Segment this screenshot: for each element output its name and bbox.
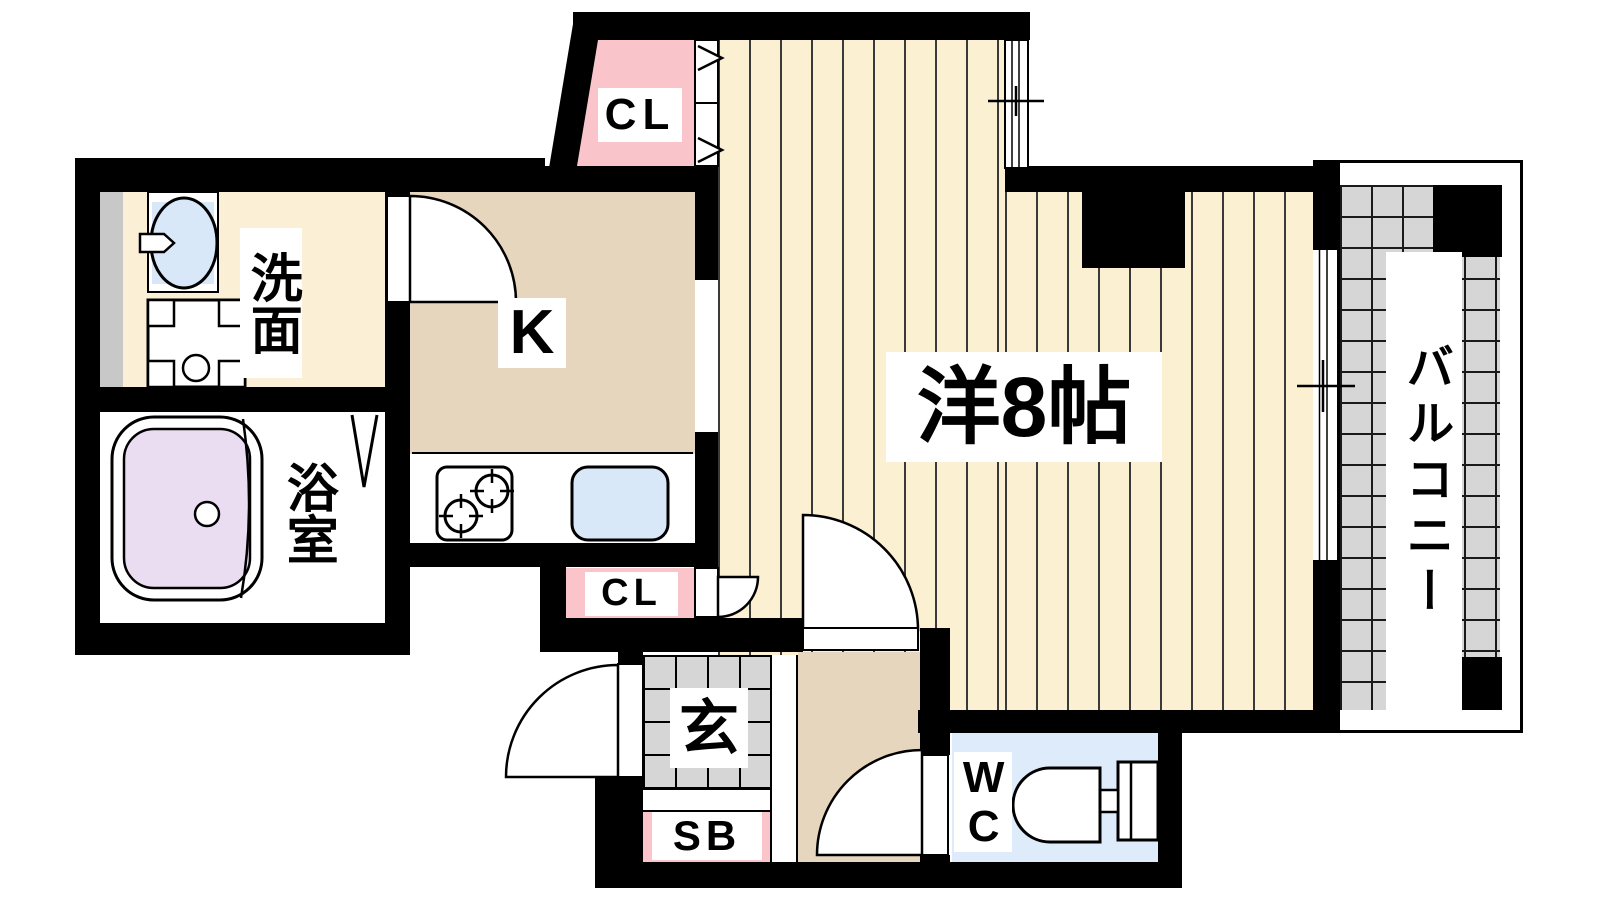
label-shoe-box: SB [652, 812, 762, 860]
label-closet-lower: CL [585, 572, 678, 616]
label-bathroom: 浴室 [276, 438, 338, 588]
label-main-room: 洋8帖 [886, 352, 1162, 462]
closet-top-door [695, 40, 718, 166]
wall-left-block-bottom [75, 623, 410, 655]
bathroom-floor [100, 412, 385, 625]
wall-kitchen-right [695, 192, 718, 543]
wall-top-main [573, 12, 1030, 40]
label-balcony: バルコニー [1386, 252, 1462, 712]
wall-hall-right-lower [920, 855, 950, 862]
wall-left-outer [75, 158, 100, 655]
label-kitchen: K [498, 298, 566, 368]
wall-washroom-right [385, 158, 410, 655]
entry-door-arc [506, 665, 618, 777]
wall-cl-bottom [545, 166, 718, 192]
wall-main-room-bottom [918, 710, 1337, 733]
hall-floor [798, 652, 927, 862]
wall-washroom-bath-divider [100, 387, 385, 412]
entrance-step [643, 788, 770, 812]
label-closet-top: CL [598, 88, 682, 142]
wall-pillar [1082, 192, 1185, 268]
floor-plan: 洗面 浴室 K CL 洋8帖 バルコニー CL 玄 SB WC [0, 0, 1600, 900]
closet-lower-door-leaf [695, 568, 718, 617]
entry-door-leaf [618, 664, 643, 777]
balcony-column-top [1433, 185, 1502, 257]
wall-bottom-outer [595, 862, 1182, 888]
entrance-side-step [770, 655, 798, 862]
wall-hall-right [920, 628, 950, 755]
label-entrance: 玄 [670, 688, 748, 768]
label-washroom: 洗面 [240, 228, 302, 378]
wall-balcony-side [1313, 160, 1337, 733]
wall-entry-left-upper [618, 652, 643, 664]
kitchen-counter [412, 452, 693, 545]
wall-upper-right [1005, 166, 1337, 192]
wall-under-closet-lower [540, 618, 803, 652]
window-top [1005, 40, 1028, 168]
pipe-space-strip [100, 192, 123, 387]
wall-wc-right [1158, 710, 1182, 888]
label-toilet: WC [954, 752, 1012, 852]
wall-left-block-top [75, 158, 545, 192]
